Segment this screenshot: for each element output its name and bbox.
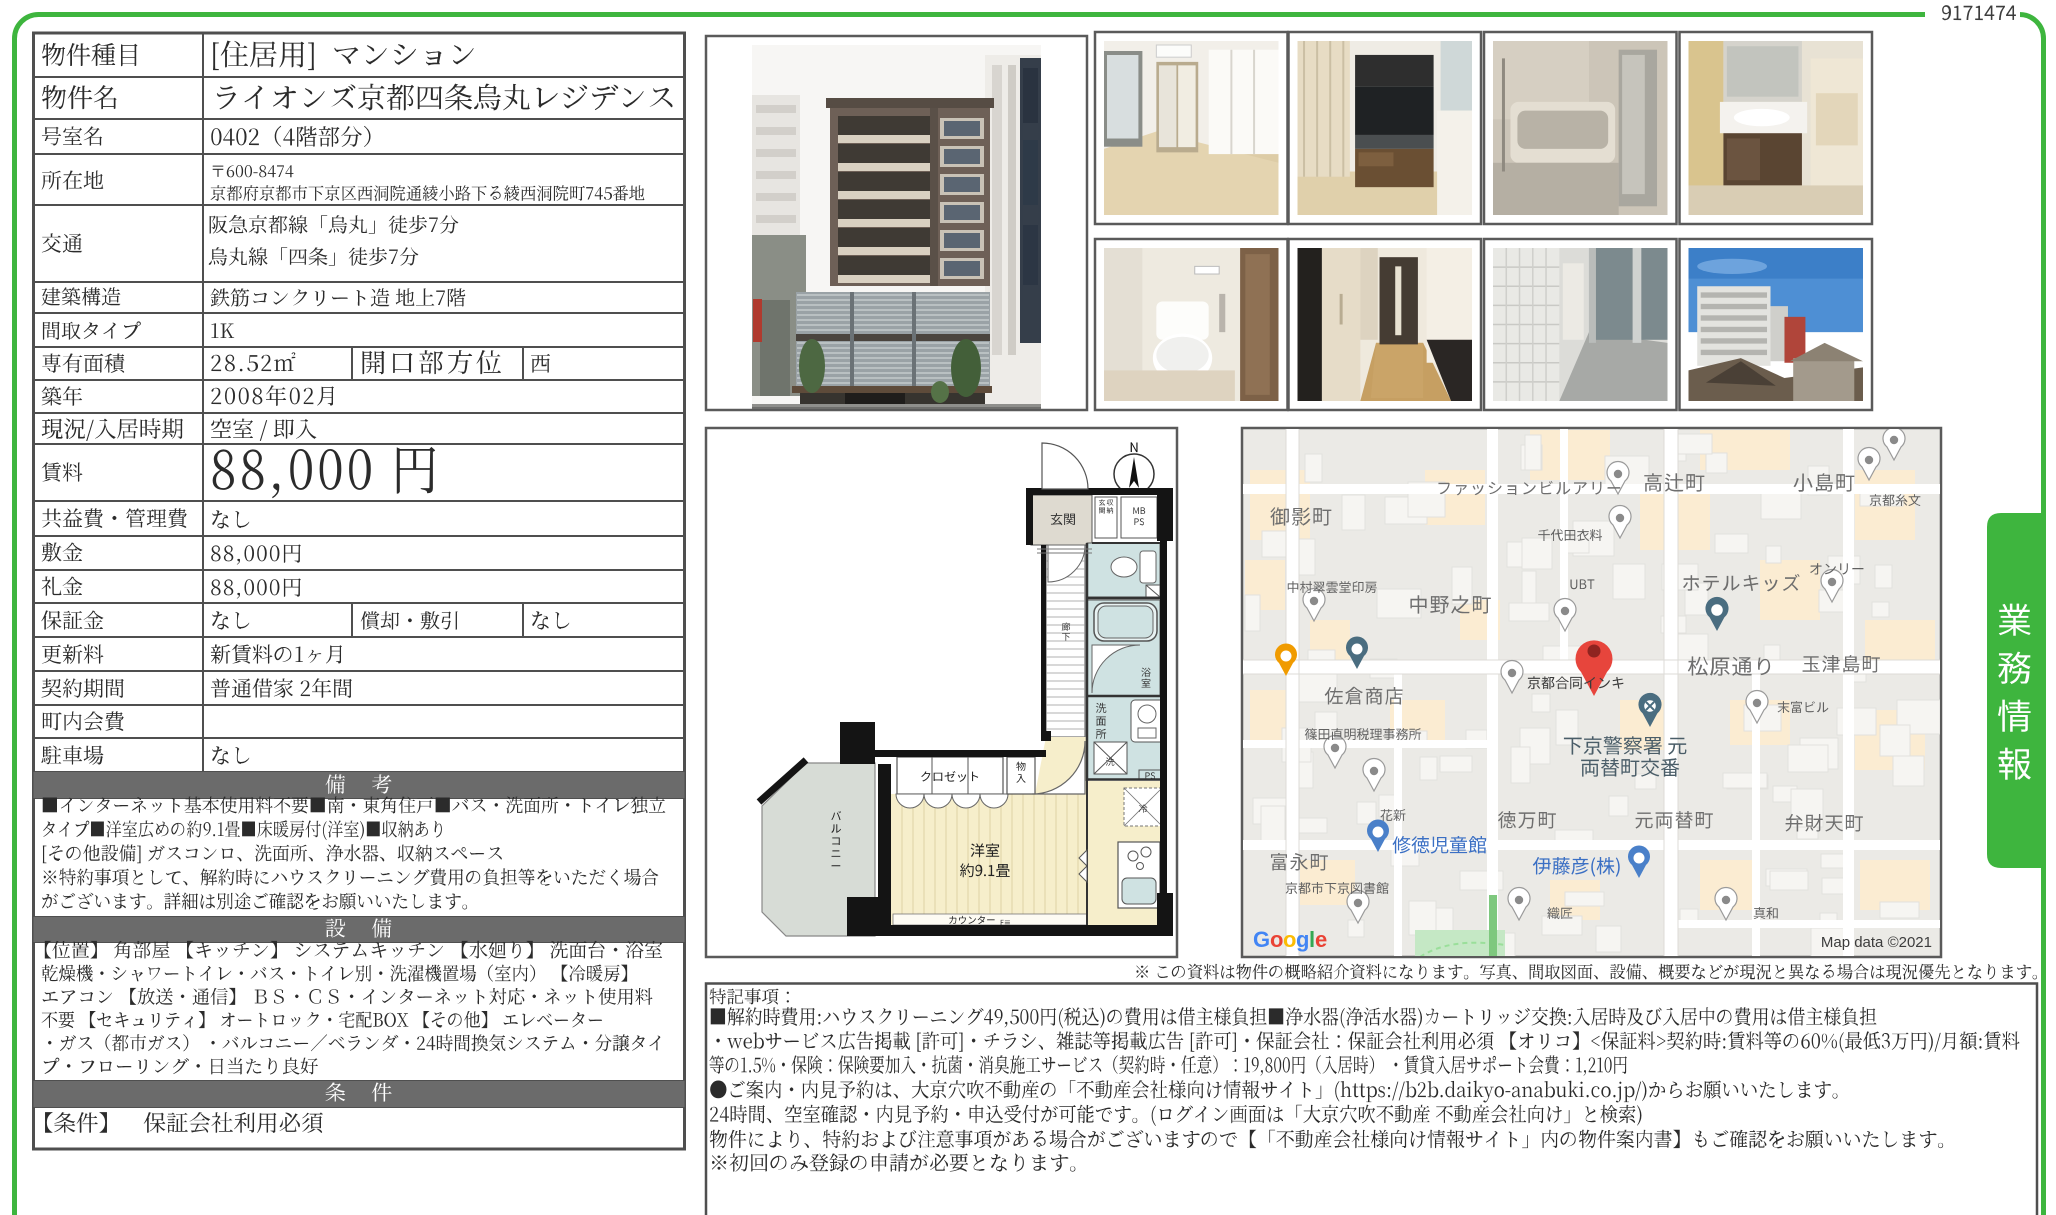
svg-text:e: e — [1315, 927, 1327, 952]
svg-text:Map data ©2021: Map data ©2021 — [1821, 934, 1932, 951]
svg-text:g: g — [1296, 927, 1309, 952]
svg-text:o: o — [1283, 927, 1296, 952]
svg-text:G: G — [1253, 927, 1270, 952]
svg-text:o: o — [1270, 927, 1283, 952]
